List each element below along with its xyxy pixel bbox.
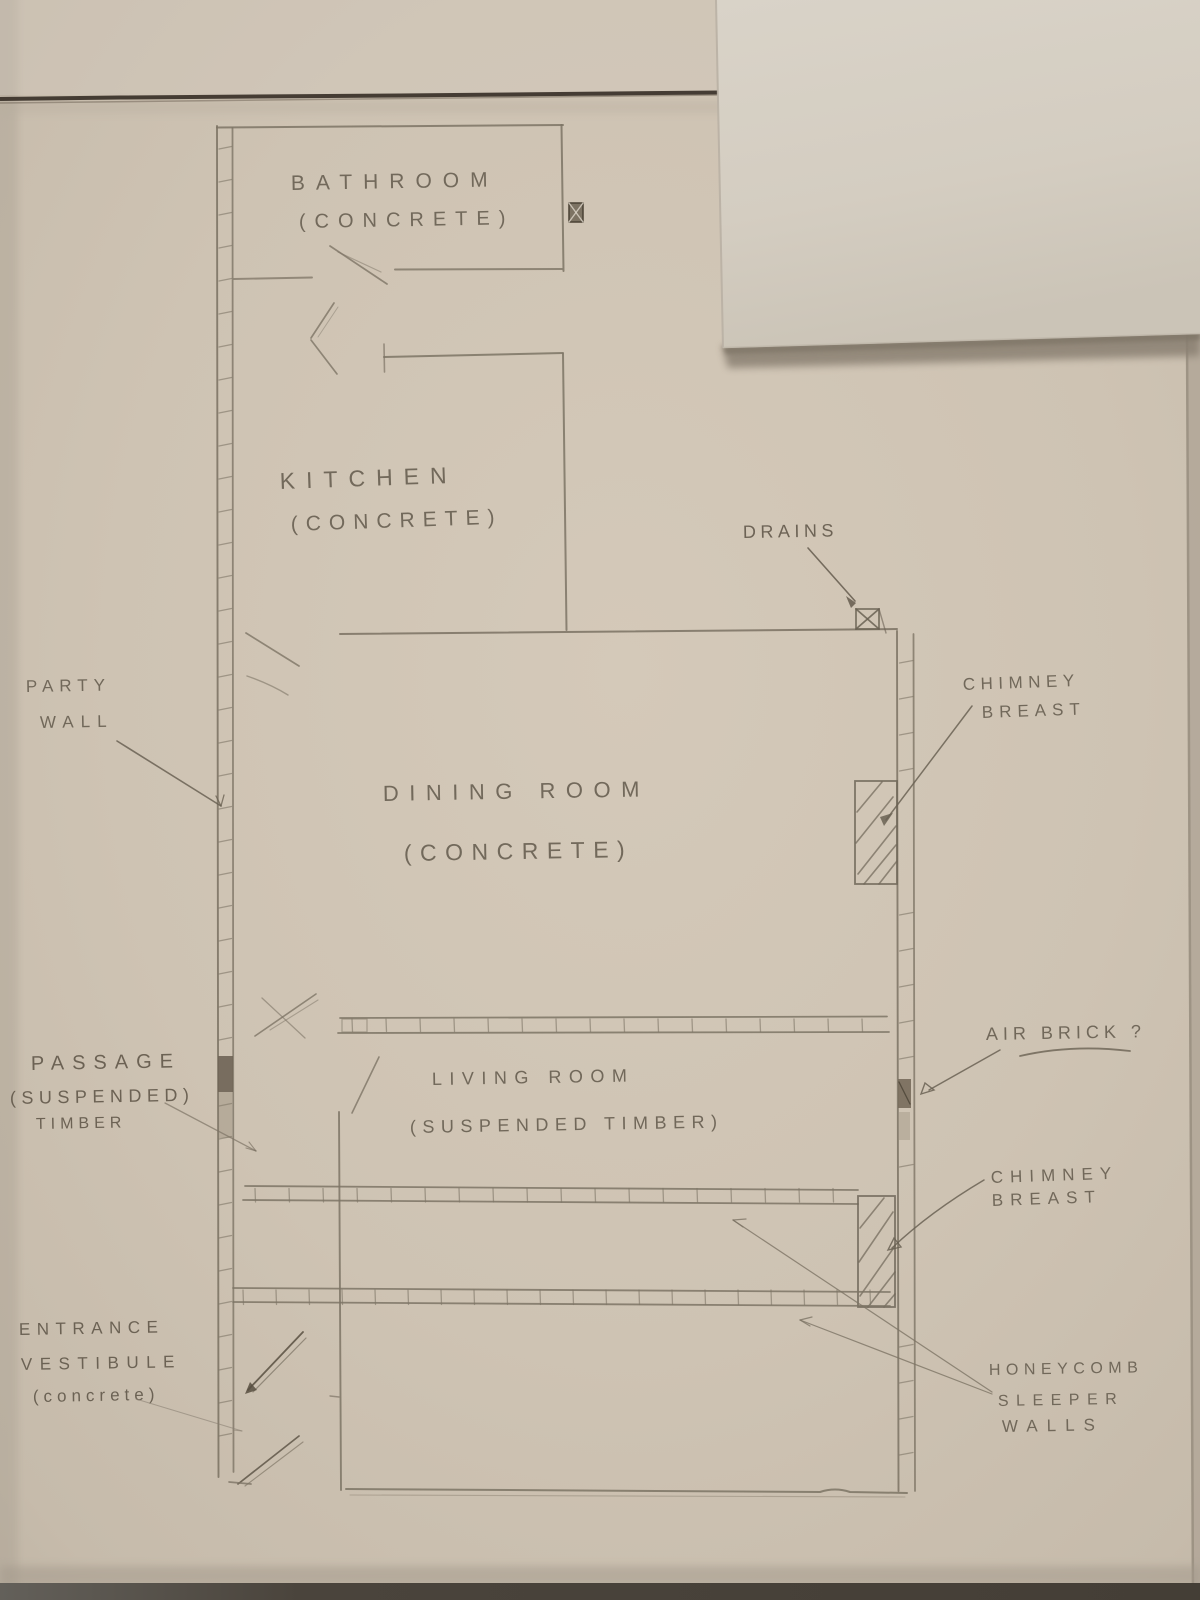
svg-text:TIMBER: TIMBER (36, 1114, 127, 1133)
svg-text:(concrete): (concrete) (33, 1385, 160, 1406)
svg-text:WALL: WALL (40, 712, 114, 732)
svg-text:BATHROOM: BATHROOM (291, 168, 499, 195)
svg-text:AIR BRICK ?: AIR BRICK ? (986, 1021, 1146, 1044)
svg-text:LIVING ROOM: LIVING ROOM (432, 1065, 635, 1089)
svg-text:(CONCRETE): (CONCRETE) (404, 836, 634, 866)
svg-text:PASSAGE: PASSAGE (31, 1050, 181, 1075)
svg-text:ENTRANCE: ENTRANCE (19, 1317, 165, 1339)
svg-text:BREAST: BREAST (981, 699, 1086, 722)
svg-text:DINING ROOM: DINING ROOM (383, 776, 650, 806)
svg-text:SLEEPER: SLEEPER (998, 1391, 1125, 1410)
svg-text:BREAST: BREAST (991, 1187, 1102, 1210)
svg-text:PARTY: PARTY (26, 676, 111, 696)
svg-text:WALLS: WALLS (1002, 1415, 1104, 1436)
svg-text:DRAINS: DRAINS (743, 520, 838, 542)
svg-text:HONEYCOMB: HONEYCOMB (989, 1359, 1144, 1379)
svg-text:(CONCRETE): (CONCRETE) (299, 207, 515, 233)
svg-text:VESTIBULE: VESTIBULE (21, 1352, 182, 1374)
